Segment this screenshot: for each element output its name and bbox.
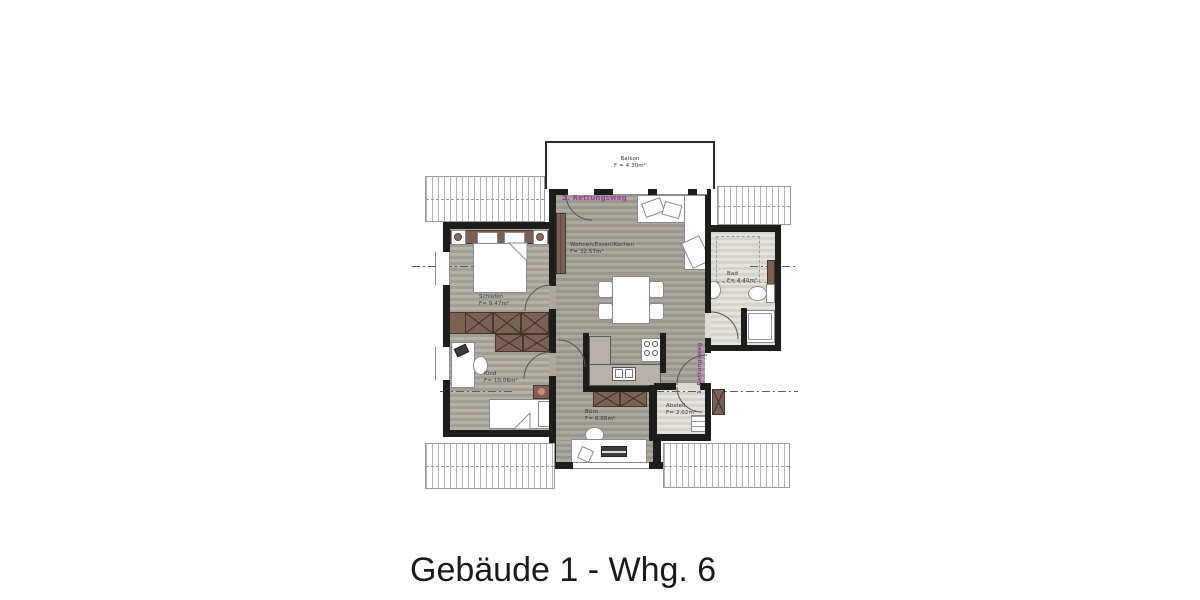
toilet-tank bbox=[766, 284, 775, 303]
wardrobe-cell bbox=[465, 312, 493, 334]
wall-segment bbox=[705, 345, 781, 351]
window bbox=[435, 252, 450, 285]
room-label-wohnen: Wohnen/Essen/Kochen F= 32.57m² bbox=[570, 242, 634, 257]
wall-segment bbox=[583, 386, 656, 392]
room-label-kind: Kind F= 10.06m² bbox=[484, 371, 518, 386]
blanket-fold bbox=[509, 243, 527, 261]
wall-segment bbox=[649, 385, 657, 440]
wall-segment bbox=[443, 222, 556, 229]
room-label-bad: Bad F= 4.40m² bbox=[727, 271, 757, 286]
room-area: F= 2.02m² bbox=[666, 410, 696, 417]
room-area: F= 32.57m² bbox=[570, 249, 634, 256]
roof-hatch bbox=[425, 176, 545, 222]
lamp-icon bbox=[537, 387, 546, 396]
room-label-balkon: Balkon F = 4.30m² bbox=[547, 156, 713, 171]
room-label-abstell: Abstell. F= 2.02m² bbox=[666, 403, 696, 418]
wall-segment bbox=[660, 333, 666, 373]
window bbox=[573, 462, 649, 469]
room-area: F= 8.88m² bbox=[585, 416, 615, 423]
wardrobe-cell bbox=[523, 334, 551, 352]
roof-hatch bbox=[717, 186, 791, 225]
roof-hatch bbox=[663, 443, 790, 488]
escape-route-2-label: 2. Rettungsweg bbox=[562, 194, 627, 202]
sink-basin bbox=[625, 369, 633, 378]
roof-hatch bbox=[425, 443, 555, 489]
dining-chair bbox=[598, 303, 613, 320]
blanket-fold bbox=[514, 413, 530, 429]
laptop-icon bbox=[601, 446, 627, 457]
dining-chair bbox=[598, 281, 613, 298]
dining-chair bbox=[649, 303, 664, 320]
burner-icon bbox=[652, 350, 658, 356]
room-area: F= 9.47m² bbox=[479, 301, 509, 308]
sink-basin bbox=[615, 369, 623, 378]
wall-segment bbox=[775, 225, 781, 351]
roof-kink-line bbox=[440, 391, 512, 392]
toilet bbox=[748, 286, 767, 301]
plan-title: Gebäude 1 - Whg. 6 bbox=[410, 551, 716, 590]
room-label-buero: Büro F= 8.88m² bbox=[585, 409, 615, 424]
wall-segment bbox=[741, 308, 747, 345]
shower bbox=[745, 310, 775, 343]
burner-icon bbox=[652, 341, 658, 347]
wardrobe-cell bbox=[493, 312, 521, 334]
wall-segment bbox=[653, 440, 661, 469]
room-area: F= 4.40m² bbox=[727, 278, 757, 285]
wardrobe-cell bbox=[521, 312, 549, 334]
room-area: F = 4.30m² bbox=[547, 163, 713, 170]
door-arc bbox=[558, 340, 585, 367]
dining-chair bbox=[649, 281, 664, 298]
room-area: F= 10.06m² bbox=[484, 378, 518, 385]
room-label-schlafen: Schlafen F= 9.47m² bbox=[479, 294, 509, 309]
lamp-icon bbox=[536, 233, 544, 241]
door-arc bbox=[525, 285, 551, 311]
window bbox=[657, 188, 688, 195]
wall-segment bbox=[705, 225, 781, 232]
wardrobe-cell bbox=[620, 390, 647, 407]
wall-segment bbox=[443, 430, 556, 437]
chimney bbox=[712, 389, 725, 415]
dining-table bbox=[612, 276, 650, 324]
floor-plan-canvas: Balkon F = 4.30m² Wohnen/Essen/Kochen F=… bbox=[0, 0, 1200, 600]
lamp-icon bbox=[454, 233, 462, 241]
wardrobe-cell bbox=[593, 390, 620, 407]
burner-icon bbox=[644, 350, 650, 356]
roof-kink-line bbox=[714, 391, 798, 392]
window bbox=[697, 188, 707, 195]
door-arc bbox=[711, 312, 738, 339]
wall-segment bbox=[549, 188, 556, 469]
sideboard bbox=[556, 213, 566, 274]
door-arc bbox=[524, 352, 551, 379]
window bbox=[435, 347, 450, 380]
wardrobe-cell bbox=[495, 334, 523, 352]
burner-icon bbox=[644, 341, 650, 347]
escape-route-1-label: 1. Rettungsweg bbox=[697, 336, 703, 394]
